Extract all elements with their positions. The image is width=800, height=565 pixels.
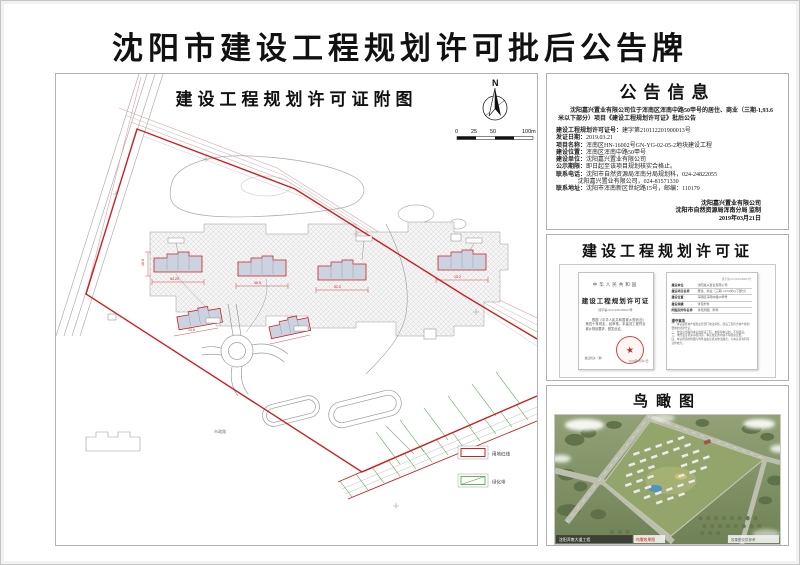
field-value: 沈阳嘉兴置业有限公司，024-81571330 <box>578 179 679 185</box>
svg-text:0: 0 <box>455 129 458 135</box>
field-value: 浑南区HN-16002号GN-YG-02-05-2地块建设工程 <box>586 143 712 149</box>
field-value: 沈阳嘉兴置业有限公司 <box>586 157 646 163</box>
caption-right: 效果图仅供参考 <box>731 537 756 542</box>
caption-red: 鸟瞰效果图 <box>636 537 656 542</box>
svg-text:绿化带: 绿化带 <box>492 479 506 486</box>
road-label: 市政路 <box>214 428 226 434</box>
field-label: 联系电话： <box>556 172 586 178</box>
svg-text:15.2: 15.2 <box>454 275 461 279</box>
bird-panel: 鸟瞰图 <box>546 385 789 546</box>
signature-line-date: 2019年03月21日 <box>556 216 761 224</box>
map-legend: 用地红线 绿化带 <box>458 446 510 487</box>
legend-item-redline: 用地红线 <box>458 446 510 459</box>
notice-board: 沈阳市建设工程规划许可批后公告牌 <box>0 0 800 565</box>
svg-text:52.0: 52.0 <box>334 285 341 289</box>
field-label: 项目名称： <box>556 143 586 149</box>
road-band-bottom <box>338 396 537 499</box>
svg-text:25: 25 <box>471 129 477 135</box>
svg-text:100m: 100m <box>522 129 536 135</box>
birdview-svg: 沈阳浑南大道工程 鸟瞰效果图 效果图仅供参考 <box>555 415 780 544</box>
field-label: 发证日期： <box>556 135 586 141</box>
notice-field-row: 公示期限：即日起至该项目规划核实合格止。 <box>556 164 779 171</box>
cert-title: 建设工程规划许可证 <box>579 295 653 305</box>
notice-field-row: 联系电话：沈阳市自然资源局浑南分局规划科，024-24822055 <box>556 172 779 179</box>
map-title: 建设工程规划许可证附图 <box>56 85 537 110</box>
field-label: 建设工程规划许可证号： <box>556 128 622 134</box>
notice-intro: 沈阳嘉兴置业有限公司位于浑南区浑南中路50甲号的居住、商业（三期-1,93.6米… <box>558 107 777 123</box>
field-label: 建设位置： <box>556 150 586 156</box>
notice-field-row: 联系地址：沈阳市浑南新区世纪路15号，邮编：110179 <box>556 186 779 193</box>
road-left <box>56 74 163 336</box>
caption-left: 沈阳浑南大道工程 <box>559 537 590 542</box>
landscape-outlines <box>170 156 466 229</box>
field-value: 浑南区浑南中路50甲号 <box>586 150 646 156</box>
cert-note: 四、本证所需的附图与附件由发证机关依法确定，与本证具有同等法律效力。 <box>672 338 752 346</box>
field-label: 联系地址： <box>556 186 586 192</box>
legend-item-greenbelt: 绿化带 <box>458 474 506 487</box>
page-title: 沈阳市建设工程规划许可批后公告牌 <box>1 23 799 68</box>
map-panel: 54.20 16.8 46.5 52.0 15.2 13.6 <box>55 73 538 546</box>
field-label: 建设单位： <box>556 157 586 163</box>
cert-number: 建字第210112201900013号 <box>579 308 653 312</box>
cert-country: 中华人民共和国 <box>579 282 653 288</box>
svg-text:54.20: 54.20 <box>170 277 179 281</box>
svg-text:用地红线: 用地红线 <box>492 451 510 458</box>
field-value: 沈阳市浑南新区世纪路15号，邮编：110179 <box>586 186 700 192</box>
svg-text:46.5: 46.5 <box>254 281 261 285</box>
certificate-box: 中华人民共和国 建设工程规划许可证 建字第210112201900013号 根据… <box>559 264 776 378</box>
field-value: 沈阳市自然资源局浑南分局规划科，024-24822055 <box>586 172 717 178</box>
permit-title: 建设工程规划许可证 <box>547 240 788 261</box>
field-label: 公示期限： <box>556 164 586 170</box>
signature-line-authority: 沈阳市自然资源局浑南分局 监制 <box>556 208 761 216</box>
cert-body-text: 根据《中华人民共和国城乡规划法》第四十条规定，经审核，本建设工程符合城乡规划要求… <box>586 318 646 331</box>
permit-panel: 建设工程规划许可证 中华人民共和国 建设工程规划许可证 建字第210112201… <box>546 234 789 381</box>
cert-form-row: 附图及附件名称详见附图、附件 <box>672 308 752 314</box>
svg-text:50: 50 <box>490 129 496 135</box>
field-value: 2019.03.21 <box>586 135 613 141</box>
cert-issuer-label: 发证机关（章） <box>585 356 605 360</box>
scale-bar: 0 25 50 100m <box>455 129 536 140</box>
svg-text:16.8: 16.8 <box>141 259 145 266</box>
site-plan-svg: 54.20 16.8 46.5 52.0 15.2 13.6 <box>56 74 537 545</box>
notice-panel: 公告信息 沈阳嘉兴置业有限公司位于浑南区浑南中路50甲号的居住、商业（三期-1,… <box>546 73 789 230</box>
notice-field-row: 项目名称：浑南区HN-16002号GN-YG-02-05-2地块建设工程 <box>556 143 779 150</box>
cert-right-header: 建字第210112201900013号 <box>672 277 752 281</box>
cert-note: 一、本证是经城乡规划主管部门依法审核，建设工程符合城乡规划要求的法律凭证。 <box>672 323 752 331</box>
bird-title: 鸟瞰图 <box>547 390 788 411</box>
field-value: 建字第210112201900013号 <box>622 128 691 134</box>
notice-title: 公告信息 <box>556 78 779 103</box>
signature-block: 沈阳嘉兴置业有限公司 沈阳市自然资源局浑南分局 监制 2019年03月21日 <box>556 201 779 224</box>
field-value: 即日起至该项目规划核实合格止。 <box>586 164 676 170</box>
notice-field-row: 发证日期：2019.03.21 <box>556 135 779 142</box>
svg-text:13.6: 13.6 <box>188 328 195 332</box>
certificate-right-page: 建字第210112201900013号 建设单位沈阳嘉兴置业有限公司 建设项目名… <box>666 272 758 370</box>
certificate-left-page: 中华人民共和国 建设工程规划许可证 建字第210112201900013号 根据… <box>578 272 654 370</box>
birdview-image: 沈阳浑南大道工程 鸟瞰效果图 效果图仅供参考 <box>554 414 781 545</box>
